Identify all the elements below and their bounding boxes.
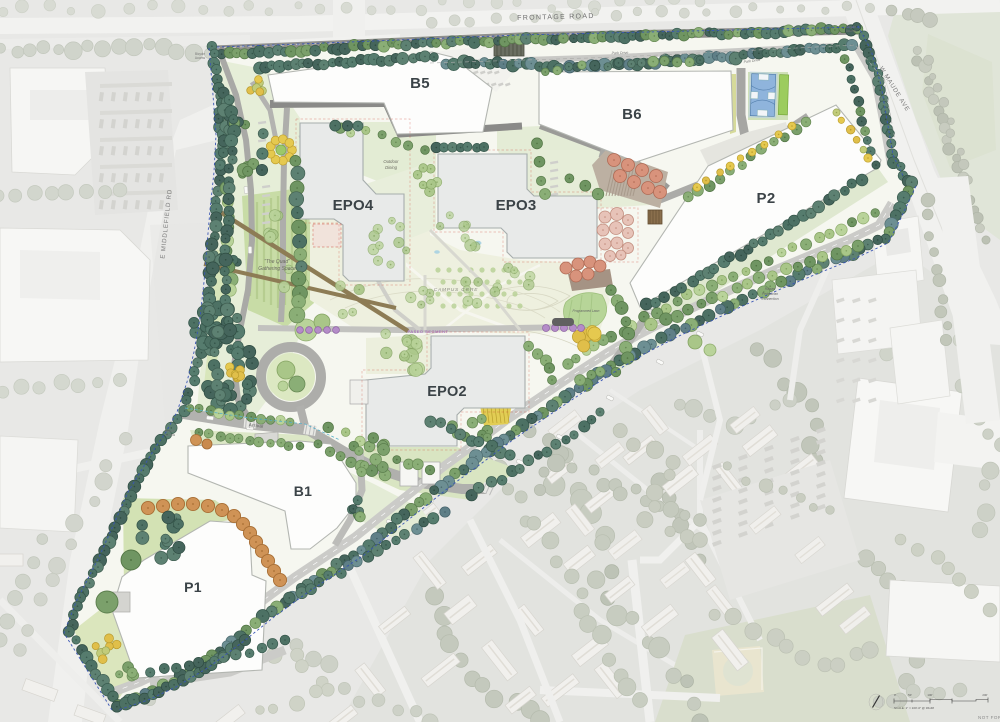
svg-text:200': 200' <box>982 693 988 697</box>
svg-text:EPO4: EPO4 <box>333 197 374 214</box>
svg-text:Connection: Connection <box>761 297 778 301</box>
svg-text:“The Quad”: “The Quad” <box>264 259 290 265</box>
svg-text:B1: B1 <box>294 483 313 499</box>
svg-text:B5: B5 <box>410 75 430 92</box>
svg-text:Access: Access <box>846 29 857 33</box>
svg-text:PASEO SEGMENT: PASEO SEGMENT <box>408 329 449 334</box>
svg-text:50': 50' <box>908 693 912 697</box>
svg-text:Pedestrian: Pedestrian <box>762 292 778 296</box>
svg-text:100': 100' <box>927 693 933 697</box>
svg-text:Access: Access <box>165 433 176 437</box>
svg-text:Gathering Space: Gathering Space <box>258 266 296 272</box>
svg-text:Access: Access <box>195 56 206 60</box>
svg-text:EPO3: EPO3 <box>496 197 537 214</box>
svg-text:Dining: Dining <box>385 165 398 170</box>
svg-text:Raised: Raised <box>765 287 776 291</box>
svg-text:NOT FOR: NOT FOR <box>978 715 1000 720</box>
svg-text:EPO2: EPO2 <box>427 384 467 400</box>
svg-text:P1: P1 <box>184 579 202 595</box>
svg-text:SCALE: 1" = 100’-0" @ 36x48: SCALE: 1" = 100’-0" @ 36x48 <box>894 706 934 710</box>
svg-text:B6: B6 <box>622 106 642 123</box>
svg-text:P2: P2 <box>757 190 776 207</box>
svg-text:Outdoor: Outdoor <box>383 159 399 164</box>
svg-text:Programmed Lawn: Programmed Lawn <box>573 309 600 313</box>
svg-text:CAMPUS CORE: CAMPUS CORE <box>434 287 479 293</box>
svg-text:Park Drive: Park Drive <box>612 51 629 56</box>
